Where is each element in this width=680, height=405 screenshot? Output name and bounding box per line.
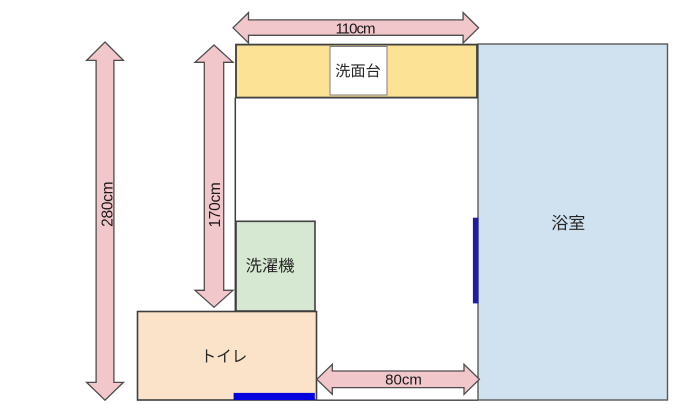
svg-text:280cm: 280cm <box>100 182 117 227</box>
svg-text:170cm: 170cm <box>207 182 224 227</box>
svg-text:80cm: 80cm <box>385 372 422 389</box>
svg-text:110cm: 110cm <box>336 20 375 37</box>
